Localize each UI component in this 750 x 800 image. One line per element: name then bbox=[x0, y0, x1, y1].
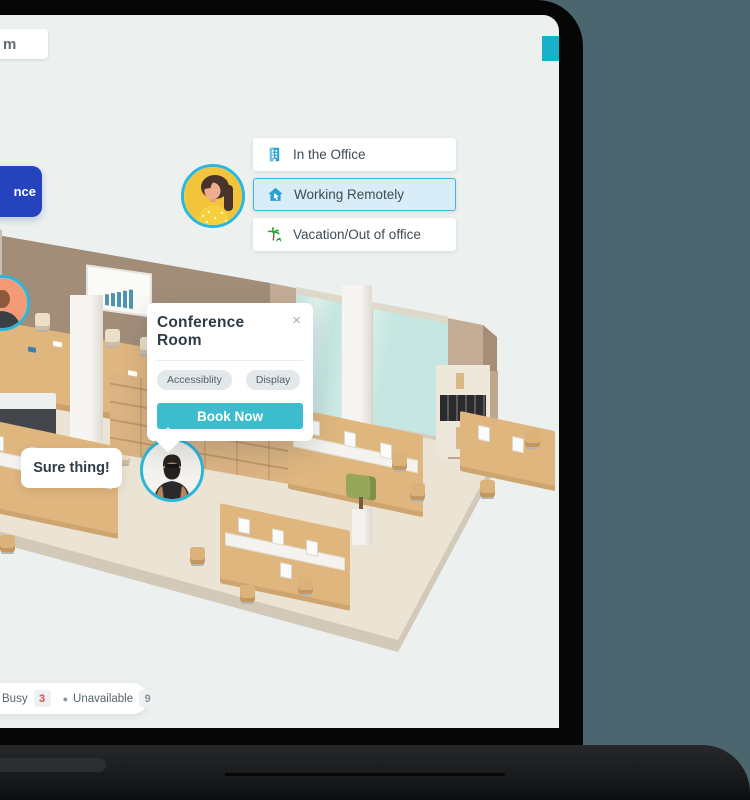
legend-unavailable[interactable]: ● Unavailable 9 bbox=[51, 690, 157, 707]
office-chair bbox=[35, 313, 50, 330]
laptop-hinge-notch bbox=[0, 758, 106, 772]
scrollbar-thumb[interactable] bbox=[542, 36, 559, 61]
presence-button[interactable]: nce bbox=[0, 166, 42, 217]
plant-pot bbox=[352, 509, 372, 545]
orange-avatar-image bbox=[0, 278, 27, 328]
close-icon[interactable]: × bbox=[290, 314, 303, 328]
woman-avatar-image bbox=[184, 167, 242, 225]
conference-room-popup: Conference Room × Accessiblity Display B… bbox=[147, 303, 313, 441]
logo-chip[interactable]: m bbox=[0, 29, 48, 59]
popup-divider bbox=[157, 360, 303, 361]
busy-count-badge: 3 bbox=[34, 690, 51, 707]
popup-tags: Accessiblity Display bbox=[157, 370, 303, 390]
book-now-button[interactable]: Book Now bbox=[157, 403, 303, 429]
office-chair bbox=[298, 577, 313, 594]
laptop-seam bbox=[225, 773, 505, 776]
chat-bubble: Sure thing! bbox=[21, 448, 122, 488]
menu-item-vacation[interactable]: Vacation/Out of office bbox=[253, 218, 456, 251]
office-chair bbox=[410, 483, 425, 500]
tag-display: Display bbox=[246, 370, 300, 390]
menu-item-label: In the Office bbox=[293, 147, 366, 162]
woman-avatar[interactable] bbox=[181, 164, 245, 228]
menu-item-working-remotely[interactable]: Working Remotely bbox=[253, 178, 456, 211]
legend-busy[interactable]: Busy 3 bbox=[2, 690, 51, 707]
chat-bubble-text: Sure thing! bbox=[33, 460, 110, 476]
unavailable-count-badge: 9 bbox=[139, 690, 156, 707]
office-chair bbox=[240, 585, 255, 602]
laptop-screen: m nce In the Office bbox=[0, 15, 559, 728]
popup-title: Conference Room bbox=[157, 314, 290, 350]
home-icon bbox=[267, 186, 284, 203]
presence-menu: In the Office Working Remotely bbox=[253, 138, 456, 251]
man-avatar-image bbox=[143, 441, 201, 499]
busy-label: Busy bbox=[2, 693, 28, 705]
unavailable-label: Unavailable bbox=[73, 693, 133, 705]
menu-item-label: Vacation/Out of office bbox=[293, 227, 421, 242]
status-legend: Busy 3 ● Unavailable 9 bbox=[0, 683, 148, 714]
palm-tree-icon bbox=[266, 226, 283, 243]
tag-accessibility: Accessiblity bbox=[157, 370, 232, 390]
page: m nce In the Office bbox=[0, 0, 750, 800]
office-chair bbox=[105, 329, 120, 346]
building-icon bbox=[266, 146, 283, 163]
unavailable-dot-icon: ● bbox=[63, 694, 68, 704]
office-chair bbox=[525, 430, 540, 447]
office-chair bbox=[480, 480, 495, 497]
menu-item-label: Working Remotely bbox=[294, 187, 404, 202]
office-chair bbox=[0, 535, 15, 552]
menu-item-in-the-office[interactable]: In the Office bbox=[253, 138, 456, 171]
office-chair bbox=[392, 453, 407, 470]
office-chair bbox=[190, 547, 205, 564]
pillar bbox=[70, 295, 103, 441]
